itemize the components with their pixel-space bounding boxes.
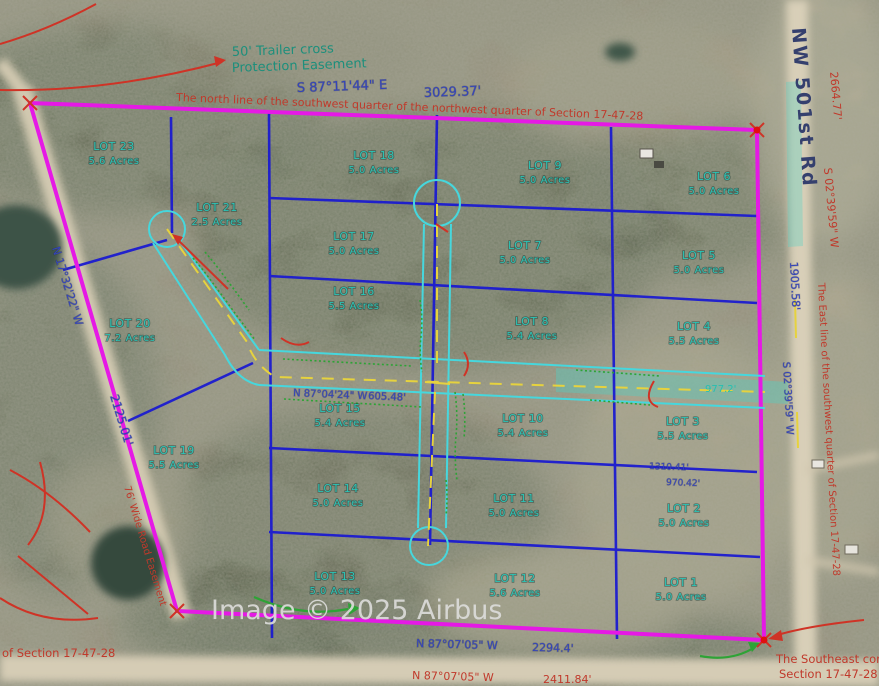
lot-acres-21: 2.5 Acres	[192, 217, 243, 228]
lot-label-20: LOT 20	[109, 317, 151, 330]
lot-label-17: LOT 17	[333, 230, 375, 243]
lot-label-1: LOT 1	[664, 576, 698, 589]
right-inner-distance: 1905.58'	[787, 261, 803, 310]
lot-label-14: LOT 14	[317, 482, 359, 495]
lot-dim-1: 1310.41'	[649, 462, 689, 473]
lot-acres-3: 5.5 Acres	[658, 431, 709, 442]
lot-acres-20: 7.2 Acres	[105, 333, 156, 344]
lot-acres-11: 5.0 Acres	[489, 508, 540, 519]
lot-label-3: LOT 3	[666, 415, 700, 428]
lot-label-11: LOT 11	[493, 492, 535, 505]
lot-label-16: LOT 16	[333, 285, 375, 298]
lot-acres-16: 5.5 Acres	[329, 301, 380, 312]
se-corner-note-line2: Section 17-47-28	[779, 667, 878, 681]
lot-label-13: LOT 13	[314, 570, 356, 583]
lot-label-12: LOT 12	[494, 572, 536, 585]
lot-acres-7: 5.0 Acres	[500, 255, 551, 266]
lot-label-6: LOT 6	[697, 170, 731, 183]
top-bearing: S 87°11'44" E	[297, 78, 388, 96]
lot-label-18: LOT 18	[353, 149, 395, 162]
lot-acres-15: 5.4 Acres	[315, 418, 366, 429]
bottom-inner-bearing: N 87°07'05" W	[416, 637, 498, 652]
lot-acres-13: 5.0 Acres	[310, 586, 361, 597]
lot-acres-6: 5.0 Acres	[689, 186, 740, 197]
lot-label-2: LOT 2	[667, 502, 701, 515]
lot-acres-9: 5.0 Acres	[520, 175, 571, 186]
lot-label-7: LOT 7	[508, 239, 542, 252]
lot-acres-19: 5.5 Acres	[149, 460, 200, 471]
lot-label-5: LOT 5	[682, 249, 716, 262]
lot-label-15: LOT 15	[319, 402, 361, 415]
lot-label-19: LOT 19	[153, 444, 195, 457]
aerial-plat-map: 50' Trailer cross Protection Easement S …	[0, 0, 879, 686]
lot-label-4: LOT 4	[677, 320, 711, 333]
lot-acres-12: 5.6 Acres	[490, 588, 541, 599]
lot-acres-17: 5.0 Acres	[329, 246, 380, 257]
lot-acres-5: 5.0 Acres	[674, 265, 725, 276]
lot-label-10: LOT 10	[502, 412, 544, 425]
sw-corner-note: of Section 17-47-28	[2, 646, 115, 660]
bottom-outer-distance: 2411.84'	[543, 673, 592, 686]
lot-label-8: LOT 8	[515, 315, 549, 328]
lot-acres-4: 5.5 Acres	[669, 336, 720, 347]
lot-acres-8: 5.4 Acres	[507, 331, 558, 342]
frontage-dim: 977.2'	[705, 384, 736, 395]
lot-acres-23: 5.6 Acres	[89, 156, 140, 167]
lot-label-23: LOT 23	[93, 140, 135, 153]
lot-label-9: LOT 9	[528, 159, 562, 172]
bottom-inner-distance: 2294.4'	[532, 641, 574, 655]
road-distance: 605.48'	[368, 391, 406, 404]
top-distance: 3029.37'	[424, 84, 482, 101]
lot-dim-2: 970.42'	[666, 478, 700, 489]
bottom-outer-bearing: N 87°07'05" W	[412, 669, 494, 684]
lot-acres-10: 5.4 Acres	[498, 428, 549, 439]
lot-acres-14: 5.0 Acres	[313, 498, 364, 509]
lot-label-21: LOT 21	[196, 201, 238, 214]
imagery-watermark: Image © 2025 Airbus	[211, 595, 502, 626]
lot-line-west-2	[171, 117, 172, 233]
se-corner-note-line1: The Southeast corner	[775, 652, 879, 666]
plat-overlay-svg: 50' Trailer cross Protection Easement S …	[0, 0, 879, 686]
lot-acres-2: 5.0 Acres	[659, 518, 710, 529]
lot-acres-1: 5.0 Acres	[656, 592, 707, 603]
lot-acres-18: 5.0 Acres	[349, 165, 400, 176]
